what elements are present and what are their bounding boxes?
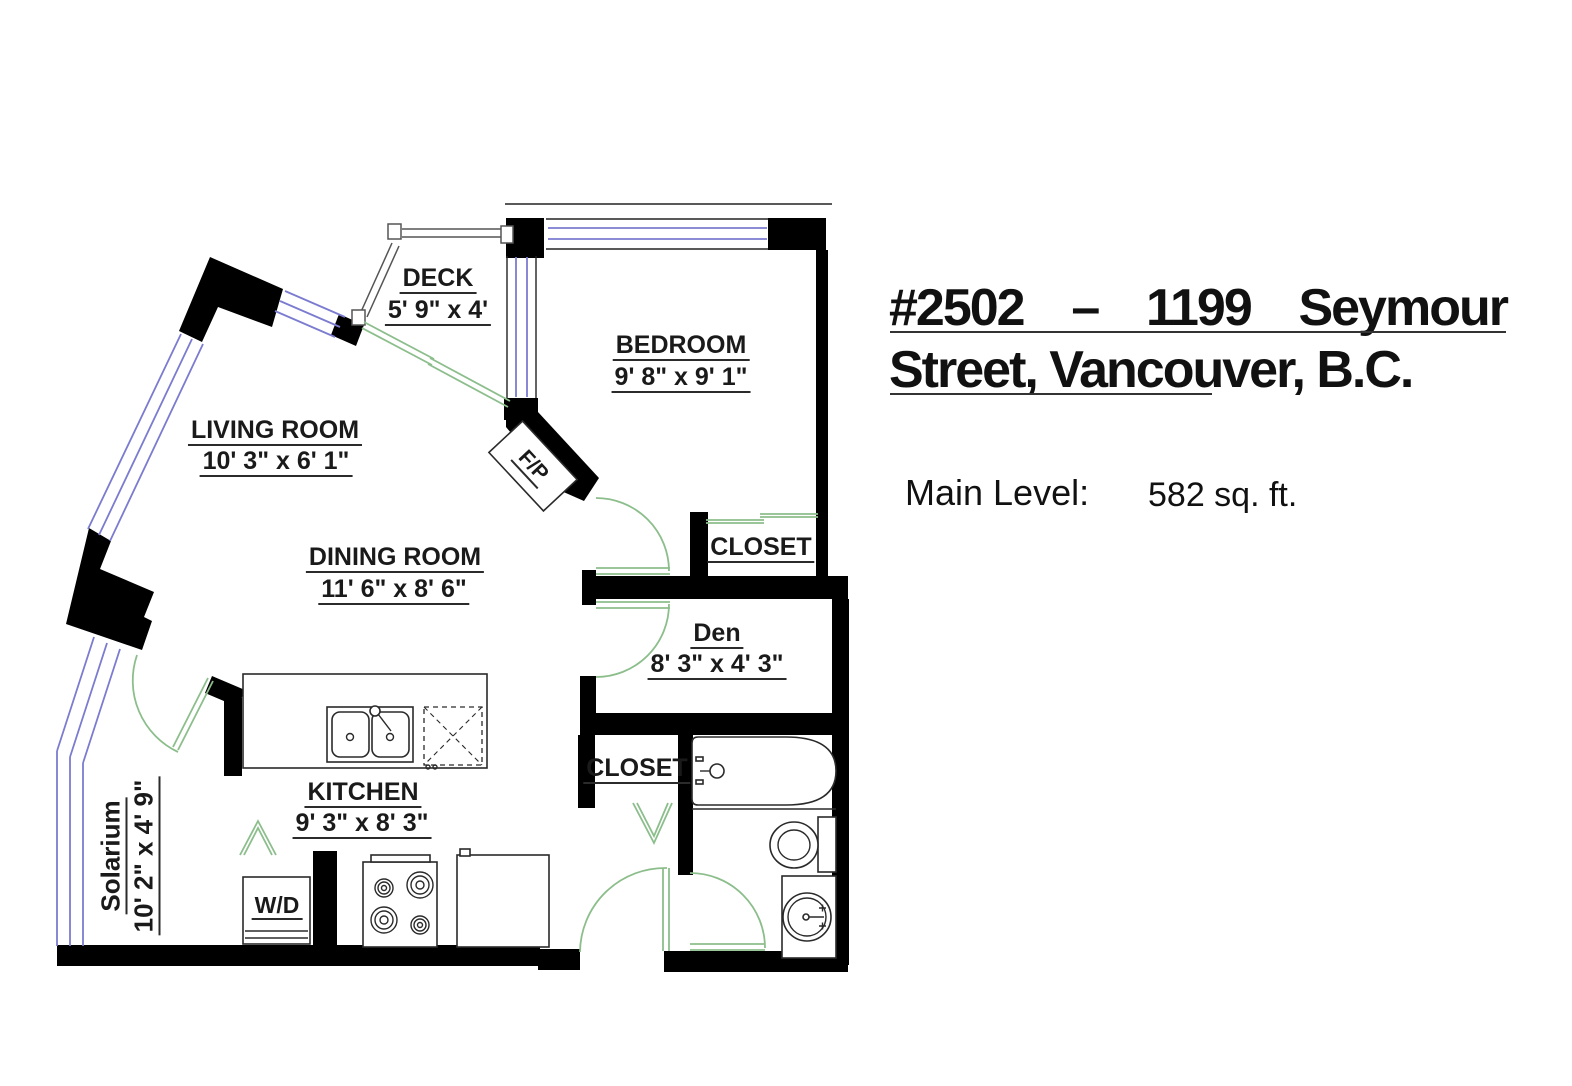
kitchen-sink [327,706,413,762]
bedroom-door [596,498,670,574]
closet-sliding-door [706,514,818,523]
bedroom-top-window [548,228,767,239]
room-label-den: Den [690,620,743,649]
kitchen-bifold-door [240,821,276,855]
solarium-name: Solarium [96,797,128,914]
room-label-bedroom-closet: CLOSET [707,534,814,563]
stove [363,855,437,947]
room-dims-den: 8' 3" x 4' 3" [648,651,787,680]
title-underline-1 [890,331,1506,333]
room-dims-deck: 5' 9" x 4' [385,297,491,326]
living-room-window [88,334,203,541]
level-label: Main Level: [905,472,1089,514]
title-underline-2 [890,393,1212,395]
room-dims-living-room: 10' 3" x 6' 1" [200,448,353,477]
entry-door [580,868,669,952]
room-dims-dining-room: 11' 6" x 8' 6" [318,576,469,605]
dishwasher [424,707,482,769]
toilet [770,817,836,872]
title-street: Seymour [1298,278,1507,338]
bathroom-door [690,873,765,950]
fridge [457,849,549,947]
room-label-hall-closet: CLOSET [583,755,690,784]
address-title-line1: #2502 – 1199 Seymour [889,278,1507,338]
deck-sliding-door [362,322,510,407]
solarium-door [133,655,213,752]
room-label-solarium: Solarium 10' 2" x 4' 9" [95,777,160,936]
solarium-dims: 10' 2" x 4' 9" [128,777,160,936]
bathtub [692,737,836,809]
room-label-dining-room: DINING ROOM [306,544,484,573]
closet-bifold-door [633,803,672,843]
label-washer-dryer: W/D [252,893,303,920]
room-label-bedroom: BEDROOM [613,332,750,361]
room-label-living-room: LIVING ROOM [188,417,362,446]
bedroom-side-window [516,257,527,397]
floor-plan-page: DECK 5' 9" x 4' BEDROOM 9' 8" x 9' 1" LI… [0,0,1572,1086]
title-number: 1199 [1146,278,1251,338]
bathroom-sink [782,876,836,958]
address-title-line2: Street, Vancouver, B.C. [889,340,1412,400]
room-label-kitchen: KITCHEN [304,779,421,808]
room-dims-kitchen: 9' 3" x 8' 3" [293,810,432,839]
title-unit: #2502 [889,278,1024,338]
title-dash: – [1071,278,1098,338]
level-area: 582 sq. ft. [1148,476,1297,515]
room-dims-bedroom: 9' 8" x 9' 1" [612,364,751,393]
room-label-deck: DECK [400,265,477,294]
